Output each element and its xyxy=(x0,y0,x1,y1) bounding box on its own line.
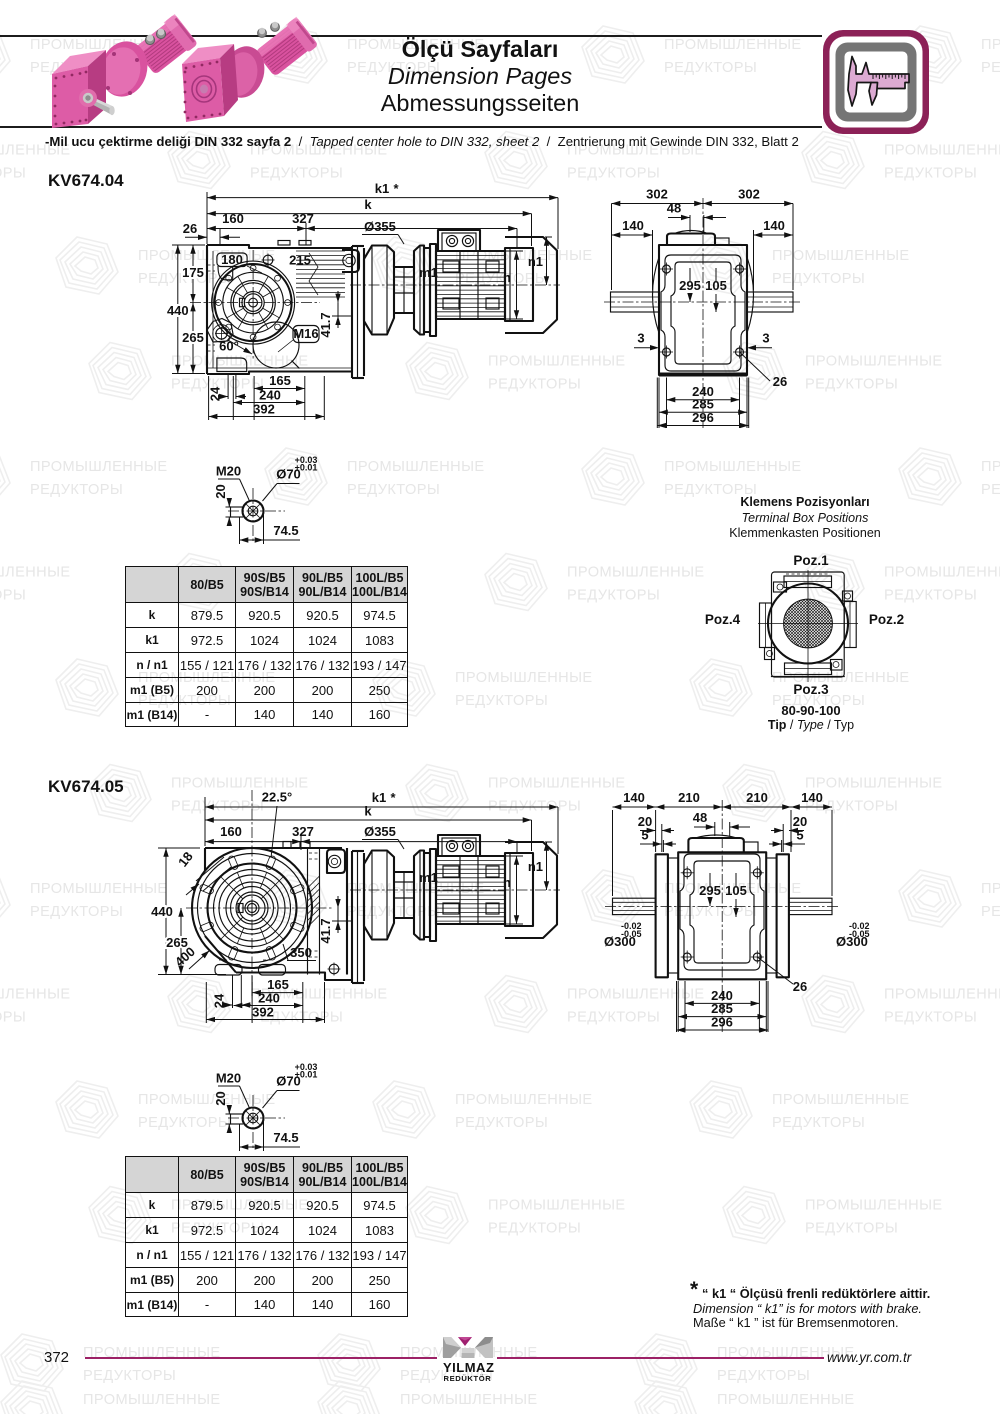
svg-text:26: 26 xyxy=(773,374,787,389)
svg-text:Ø300: Ø300 xyxy=(604,934,636,949)
svg-text:392: 392 xyxy=(252,1005,274,1020)
svg-text:296: 296 xyxy=(692,410,714,425)
svg-text:440: 440 xyxy=(167,303,189,318)
svg-text:210: 210 xyxy=(678,790,700,805)
svg-text:5: 5 xyxy=(641,828,648,843)
svg-text:165: 165 xyxy=(269,373,291,388)
svg-text:41.7: 41.7 xyxy=(318,312,333,337)
svg-text:18: 18 xyxy=(175,849,196,870)
svg-text:160: 160 xyxy=(222,211,244,226)
svg-text:392: 392 xyxy=(253,402,275,417)
svg-text:41.7: 41.7 xyxy=(318,918,333,943)
svg-text:3: 3 xyxy=(762,331,769,346)
svg-text:327: 327 xyxy=(292,824,314,839)
svg-text:240: 240 xyxy=(259,388,281,403)
svg-text:327: 327 xyxy=(292,211,314,226)
svg-text:140: 140 xyxy=(623,790,645,805)
svg-text:265: 265 xyxy=(182,330,204,345)
svg-text:296: 296 xyxy=(711,1015,733,1030)
svg-text:140: 140 xyxy=(763,218,785,233)
svg-text:*: * xyxy=(390,790,396,805)
svg-text:24: 24 xyxy=(208,386,223,401)
svg-text:440: 440 xyxy=(151,904,173,919)
svg-text:180: 180 xyxy=(221,252,243,267)
svg-text:265: 265 xyxy=(166,935,188,950)
svg-text:215: 215 xyxy=(289,253,311,268)
svg-text:26: 26 xyxy=(183,221,197,236)
svg-text:210: 210 xyxy=(746,790,768,805)
svg-text:k1: k1 xyxy=(375,181,389,196)
svg-text:160: 160 xyxy=(220,824,242,839)
svg-text:302: 302 xyxy=(646,187,668,202)
svg-text:22.5°: 22.5° xyxy=(262,790,293,805)
svg-text:175: 175 xyxy=(182,265,204,280)
svg-text:3: 3 xyxy=(637,331,644,346)
svg-text:k1: k1 xyxy=(372,790,386,805)
svg-text:24: 24 xyxy=(212,993,227,1008)
svg-text:48: 48 xyxy=(667,201,681,216)
svg-text:k: k xyxy=(364,804,372,819)
svg-text:240: 240 xyxy=(258,991,280,1006)
svg-text:48: 48 xyxy=(693,810,707,825)
svg-text:26: 26 xyxy=(793,979,807,994)
svg-text:5: 5 xyxy=(796,828,803,843)
svg-text:Ø300: Ø300 xyxy=(836,934,868,949)
svg-text:k: k xyxy=(364,197,372,212)
svg-text:302: 302 xyxy=(738,187,760,202)
svg-text:140: 140 xyxy=(801,790,823,805)
svg-text:*: * xyxy=(393,181,399,196)
svg-text:350: 350 xyxy=(290,945,312,960)
svg-text:M16: M16 xyxy=(293,326,318,341)
svg-text:140: 140 xyxy=(622,218,644,233)
